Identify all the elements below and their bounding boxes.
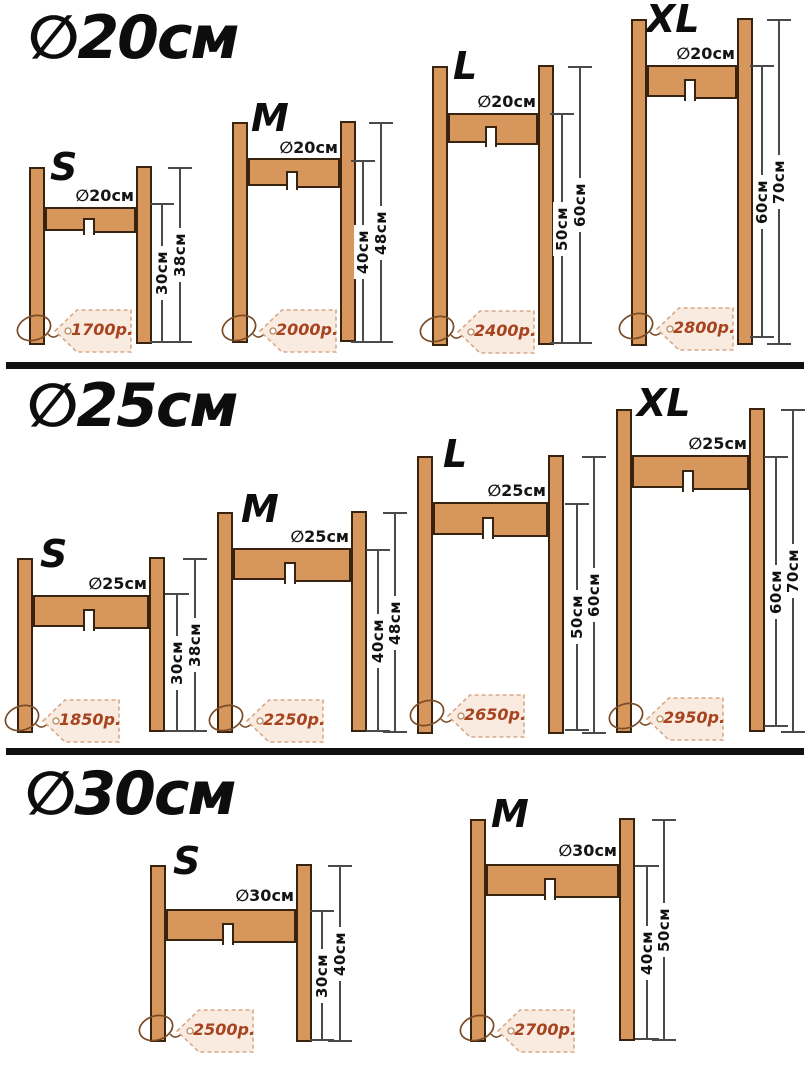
price-tag: 2950р. <box>607 693 727 745</box>
size-label: L <box>453 47 477 85</box>
shelf-step <box>94 227 136 233</box>
price-text: 2000р. <box>276 320 336 339</box>
section-divider <box>6 748 804 755</box>
price-text: 2500р. <box>193 1020 253 1039</box>
shelf-diameter-label: ∅20см <box>64 186 134 205</box>
shelf-slot <box>83 609 95 631</box>
dimension-height-to-shelf: 40см <box>646 865 648 1040</box>
shelf-board <box>233 548 351 580</box>
price-tag: 2800р. <box>617 303 737 355</box>
dimension-total-height: 48см <box>394 512 396 733</box>
dimension-label: 60см <box>571 178 589 232</box>
size-label: S <box>50 148 77 186</box>
string-loop-icon <box>458 1011 497 1044</box>
section-title-30cm: ∅30см <box>25 764 235 824</box>
shelf-diameter-label: ∅25см <box>77 574 147 593</box>
shelf-diameter-label: ∅20см <box>466 92 536 111</box>
shelf-diameter-label: ∅25см <box>476 481 546 500</box>
dimension-label: 40см <box>331 926 349 980</box>
shelf-step <box>94 623 149 629</box>
string-loop-icon <box>617 309 656 342</box>
dimension-total-height: 70см <box>792 409 794 733</box>
section-title-20cm: ∅20см <box>28 8 238 68</box>
shelf-step <box>295 576 351 582</box>
left-leg <box>616 409 632 733</box>
dimension-label: 50см <box>655 903 673 957</box>
shelf-step <box>693 484 749 490</box>
right-leg <box>548 455 564 734</box>
dimension-height-to-shelf: 50см <box>576 503 578 731</box>
shelf-board <box>647 65 737 97</box>
price-tag: 2250р. <box>207 695 327 747</box>
shelf-slot <box>684 79 696 101</box>
price-text: 2800р. <box>673 318 733 337</box>
dimension-label: 30см <box>153 246 171 300</box>
price-text: 2650р. <box>464 705 524 724</box>
dimension-total-height: 70см <box>778 19 780 345</box>
string-loop-icon <box>137 1011 176 1044</box>
price-tag: 2400р. <box>418 306 538 358</box>
dimension-total-height: 38см <box>179 167 181 343</box>
dimension-label: 40см <box>638 925 656 979</box>
dimension-total-height: 60см <box>579 66 581 344</box>
dimension-label: 50см <box>553 201 571 255</box>
shelf-slot <box>286 171 298 190</box>
string-loop-icon <box>607 699 646 732</box>
shelf-slot <box>284 562 296 584</box>
dimension-label: 70см <box>770 155 788 209</box>
dimension-height-to-shelf: 30см <box>321 910 323 1041</box>
size-label: S <box>173 842 200 880</box>
string-loop-icon <box>15 311 54 344</box>
size-label: M <box>491 795 529 833</box>
dimension-label: 48см <box>372 205 390 259</box>
shelf-diameter-label: ∅20см <box>665 44 735 63</box>
dimension-height-to-shelf: 60см <box>775 456 777 727</box>
dimension-label: 30см <box>313 948 331 1002</box>
shelf-step <box>297 182 340 188</box>
dimension-label: 48см <box>386 595 404 649</box>
dimension-label: 70см <box>784 544 802 598</box>
dimension-label: 30см <box>168 635 186 689</box>
size-label: M <box>241 490 279 528</box>
right-leg <box>749 408 765 732</box>
price-text: 1850р. <box>59 710 119 729</box>
string-loop-icon <box>207 701 246 734</box>
shelf-board <box>486 864 619 896</box>
price-tag: 2500р. <box>137 1005 257 1057</box>
shelf-slot <box>222 923 234 945</box>
left-leg <box>631 19 647 346</box>
pot-stand-size-chart: ∅20см S ∅20см 30см 38см 1700р. M <box>0 0 810 1080</box>
dimension-total-height: 40см <box>339 865 341 1042</box>
dimension-total-height: 60см <box>593 456 595 734</box>
price-text: 2950р. <box>663 708 723 727</box>
price-tag: 2700р. <box>458 1005 578 1057</box>
shelf-step <box>555 892 619 898</box>
shelf-slot <box>544 878 556 900</box>
shelf-board <box>33 595 149 627</box>
right-leg <box>149 557 165 732</box>
size-label: L <box>443 435 467 473</box>
right-leg <box>136 166 152 344</box>
string-loop-icon <box>3 701 42 734</box>
section-divider <box>6 362 804 369</box>
dimension-label: 38см <box>186 618 204 672</box>
shelf-diameter-label: ∅25см <box>279 527 349 546</box>
dimension-height-to-shelf: 50см <box>561 113 563 344</box>
shelf-step <box>233 937 296 943</box>
string-loop-icon <box>418 312 457 345</box>
shelf-diameter-label: ∅25см <box>677 434 747 453</box>
shelf-board <box>448 113 538 143</box>
shelf-slot <box>482 517 494 539</box>
price-tag: 2000р. <box>220 305 340 357</box>
price-tag: 1700р. <box>15 305 135 357</box>
string-loop-icon <box>408 696 447 729</box>
dimension-height-to-shelf: 30см <box>176 593 178 732</box>
section-title-25cm: ∅25см <box>27 376 237 436</box>
shelf-slot <box>83 218 95 235</box>
price-text: 1700р. <box>71 320 131 339</box>
dimension-total-height: 38см <box>194 558 196 732</box>
dimension-label: 40см <box>369 613 387 667</box>
shelf-step <box>695 93 737 99</box>
price-text: 2700р. <box>514 1020 574 1039</box>
shelf-diameter-label: ∅20см <box>268 138 338 157</box>
dimension-label: 60см <box>585 568 603 622</box>
dimension-label: 38см <box>171 228 189 282</box>
dimension-height-to-shelf: 60см <box>761 65 763 338</box>
dimension-label: 60см <box>767 564 785 618</box>
shelf-step <box>493 531 548 537</box>
left-leg <box>432 66 448 346</box>
right-leg <box>737 18 753 345</box>
dimension-label: 40см <box>354 224 372 278</box>
right-leg <box>351 511 367 732</box>
dimension-height-to-shelf: 40см <box>362 160 364 343</box>
size-label: XL <box>637 384 691 422</box>
dimension-height-to-shelf: 40см <box>377 549 379 732</box>
price-text: 2250р. <box>263 710 323 729</box>
size-label: M <box>251 99 289 137</box>
shelf-diameter-label: ∅30см <box>547 841 617 860</box>
shelf-slot <box>485 126 497 147</box>
shelf-board <box>45 207 136 231</box>
right-leg <box>538 65 554 345</box>
dimension-total-height: 48см <box>380 122 382 343</box>
dimension-height-to-shelf: 30см <box>161 203 163 343</box>
shelf-slot <box>682 470 694 492</box>
price-tag: 1850р. <box>3 695 123 747</box>
size-label: S <box>40 535 67 573</box>
shelf-board <box>632 455 749 488</box>
price-tag: 2650р. <box>408 690 528 742</box>
right-leg <box>296 864 312 1042</box>
right-leg <box>619 818 635 1041</box>
shelf-diameter-label: ∅30см <box>224 886 294 905</box>
price-text: 2400р. <box>474 321 534 340</box>
shelf-board <box>166 909 296 941</box>
dimension-label: 60см <box>753 174 771 228</box>
string-loop-icon <box>220 311 259 344</box>
shelf-step <box>496 139 538 145</box>
dimension-label: 50см <box>568 590 586 644</box>
dimension-total-height: 50см <box>663 819 665 1041</box>
shelf-board <box>248 158 340 186</box>
shelf-board <box>433 502 548 535</box>
size-label: XL <box>646 0 700 38</box>
